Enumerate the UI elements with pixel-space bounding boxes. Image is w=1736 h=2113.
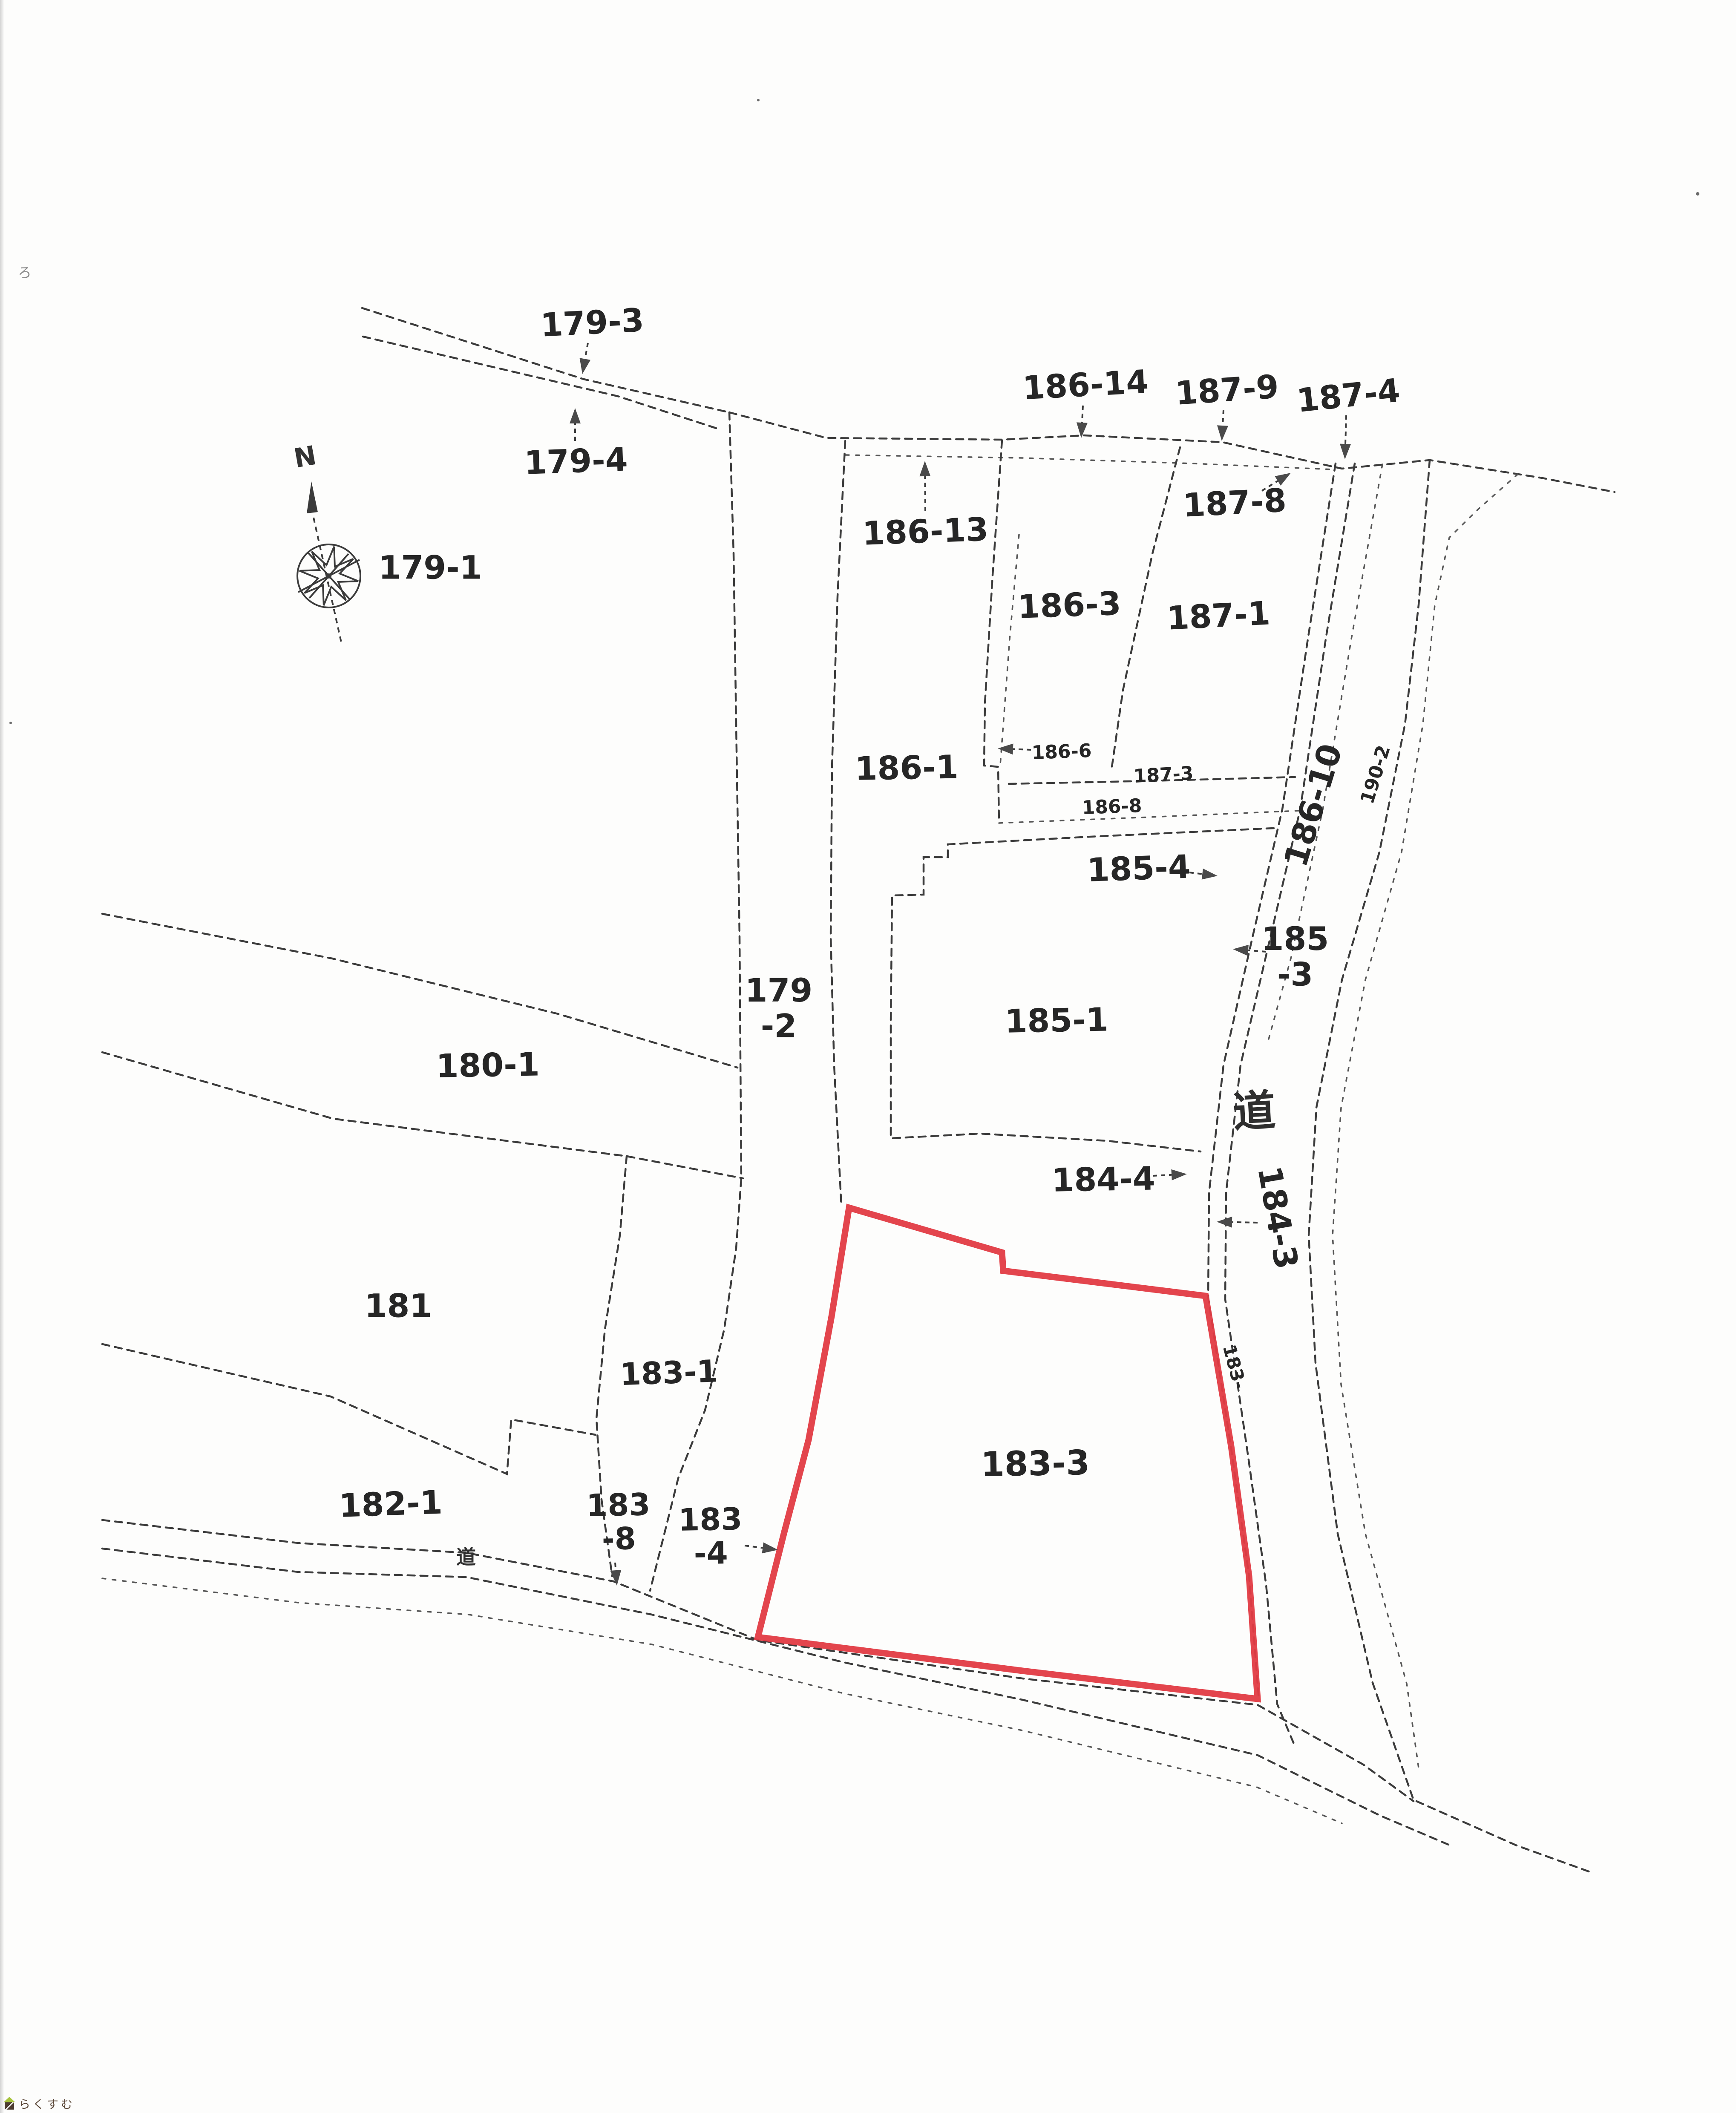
road-edge-line bbox=[102, 1578, 1342, 1823]
parcel-label-187-4: 187-4 bbox=[1295, 371, 1402, 420]
parcel-label-187-3: 187-3 bbox=[1133, 763, 1194, 787]
scan-speck-layer bbox=[9, 99, 1699, 724]
road-edge-line bbox=[1208, 463, 1336, 1700]
parcel-label-185-4: 185-4 bbox=[1086, 847, 1191, 889]
map-canvas: 179-3179-4179-1179-2180-1181182-1183-118… bbox=[0, 0, 1736, 2113]
parcel-label-179-2: 179-2 bbox=[745, 971, 813, 1045]
parcel-arrow-leader-187-9 bbox=[1223, 410, 1224, 426]
parcel-label-183-1: 183-1 bbox=[619, 1353, 718, 1392]
parcel-label-187-1: 187-1 bbox=[1166, 594, 1271, 637]
scan-speck bbox=[9, 722, 12, 724]
parcel-arrowhead-179-4 bbox=[570, 408, 581, 423]
parcel-arrowhead-183-4 bbox=[762, 1543, 778, 1554]
parcel-label-186-10: 186-10 bbox=[1276, 740, 1350, 871]
parcel-arrow-leader-186-6 bbox=[1013, 749, 1031, 750]
boundary-line bbox=[650, 412, 741, 1591]
north-arrow-icon bbox=[307, 481, 318, 513]
parcel-label-180-1: 180-1 bbox=[436, 1045, 540, 1085]
parcel-arrowhead-186-13 bbox=[919, 461, 930, 476]
scan-speck bbox=[757, 99, 760, 101]
parcel-label-185-1: 185-1 bbox=[1005, 1000, 1109, 1040]
parcel-label-186-6: 186-6 bbox=[1031, 740, 1092, 764]
parcel-label-187-8: 187-8 bbox=[1182, 481, 1287, 524]
parcel-arrowhead-187-4 bbox=[1340, 444, 1351, 459]
parcel-arrow-leader-186-14 bbox=[1082, 406, 1083, 423]
rakusumu-logo: らくすむ bbox=[3, 2097, 75, 2110]
parcel-label-184-3: 184-3 bbox=[1250, 1163, 1306, 1272]
parcel-label-183-3: 183-3 bbox=[980, 1443, 1090, 1484]
road-kanji-main: 道 bbox=[1232, 1085, 1278, 1137]
parcel-label-187-9: 187-9 bbox=[1174, 367, 1280, 412]
parcel-arrowhead-184-3 bbox=[1217, 1217, 1232, 1228]
parcel-label-190-2: 190-2 bbox=[1356, 743, 1395, 806]
parcel-label-183-4: 183-4 bbox=[678, 1501, 743, 1572]
parcel-label-186-13: 186-13 bbox=[862, 510, 989, 552]
boundary-line bbox=[102, 1344, 596, 1474]
parcel-label-186-3: 186-3 bbox=[1017, 584, 1122, 625]
parcel-arrowhead-184-4 bbox=[1171, 1169, 1187, 1180]
parcel-arrow-leader-184-3 bbox=[1232, 1222, 1258, 1223]
parcel-labels-layer: 179-3179-4179-1179-2180-1181182-1183-118… bbox=[18, 265, 1402, 1572]
compass-north-label: N bbox=[291, 440, 319, 474]
boundary-line bbox=[999, 811, 1298, 823]
parcel-label-185-3: 185-3 bbox=[1261, 920, 1329, 993]
road-edge-line bbox=[1333, 474, 1518, 1768]
house-icon bbox=[3, 2097, 15, 2110]
parcel-label-179-4: 179-4 bbox=[524, 440, 628, 481]
scan-speck bbox=[1696, 192, 1699, 196]
cadastral-map-page: 179-3179-4179-1179-2180-1181182-1183-118… bbox=[0, 0, 1736, 2113]
parcel-label-182-1: 182-1 bbox=[338, 1483, 443, 1524]
parcel-arrowhead-187-9 bbox=[1217, 425, 1228, 441]
parcel-label-186-14: 186-14 bbox=[1022, 363, 1149, 407]
parcel-label-179-3: 179-3 bbox=[539, 301, 645, 344]
house-body-icon bbox=[5, 2102, 14, 2110]
parcel-arrow-leader-183-4 bbox=[745, 1546, 763, 1548]
boundary-line bbox=[363, 337, 720, 429]
parcel-arrow-leader-183-8 bbox=[615, 1563, 616, 1570]
compass-rose bbox=[297, 481, 360, 644]
parcel-label-179-1: 179-1 bbox=[378, 549, 482, 587]
parcel-arrow-leader-185-4 bbox=[1189, 872, 1202, 874]
boundary-line bbox=[831, 441, 845, 1206]
boundary-line bbox=[846, 455, 1333, 469]
parcel-label-186-1: 186-1 bbox=[855, 748, 959, 787]
parcel-arrow-leader-184-4 bbox=[1153, 1175, 1172, 1176]
boundary-line bbox=[729, 412, 1615, 492]
parcel-arrow-leader-179-3 bbox=[585, 343, 588, 359]
parcel-label-184-4: 184-4 bbox=[1051, 1159, 1156, 1199]
boundary-line bbox=[102, 914, 737, 1068]
compass-axis-line bbox=[314, 518, 342, 644]
parcel-arrow-leader-187-4 bbox=[1345, 415, 1346, 444]
logo-brand-text: らくすむ bbox=[19, 2099, 75, 2110]
parcel-label-181: 181 bbox=[365, 1287, 432, 1325]
parcel-arrowhead-185-4 bbox=[1202, 869, 1218, 880]
boundary-line bbox=[1000, 535, 1019, 765]
house-roof-icon bbox=[3, 2097, 15, 2102]
boundary-lines-layer bbox=[102, 308, 1615, 1872]
boundary-line bbox=[102, 1052, 743, 1178]
road-kanji-small: 道 bbox=[456, 1546, 477, 1569]
parcel-arrowhead-186-6 bbox=[998, 743, 1013, 754]
parcel-arrowhead-179-3 bbox=[580, 358, 591, 374]
boundary-line bbox=[891, 828, 1274, 1151]
parcel-arrowhead-185-3 bbox=[1233, 945, 1249, 956]
road-edge-line bbox=[1309, 460, 1591, 1872]
compass-center-dot bbox=[326, 573, 331, 579]
road-edge-line bbox=[102, 1520, 1414, 1801]
parcel-label-183-8: 183-8 bbox=[586, 1486, 651, 1557]
edge-mark: ろ bbox=[18, 265, 32, 281]
parcel-label-186-8: 186-8 bbox=[1082, 795, 1142, 819]
parcel-arrow-leader-186-13 bbox=[925, 476, 925, 511]
boundary-line bbox=[984, 440, 1002, 822]
